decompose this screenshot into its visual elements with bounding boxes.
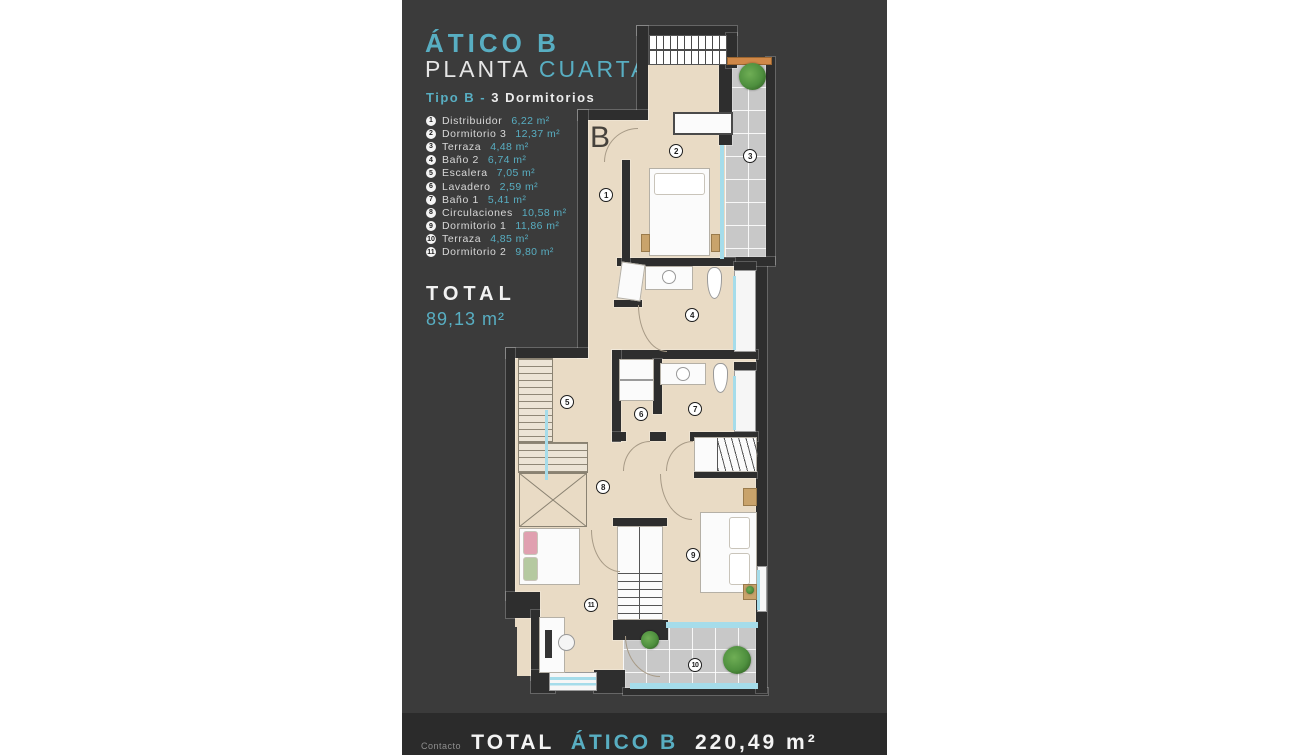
footer-total-label: TOTAL xyxy=(471,731,554,754)
room-number-badge: 6 xyxy=(634,407,648,421)
wall xyxy=(766,57,775,264)
wall xyxy=(613,518,667,526)
block-letter: B xyxy=(590,121,611,155)
pillow xyxy=(729,517,750,549)
window-bano1 xyxy=(734,370,756,432)
pillow xyxy=(523,557,538,581)
desk-chair xyxy=(558,634,575,651)
wall xyxy=(756,262,767,693)
staircase-landing xyxy=(518,442,588,473)
laundry-units xyxy=(619,359,654,401)
wall xyxy=(637,26,648,120)
stair-glass-rail xyxy=(545,410,548,480)
room-number-badge: 8 xyxy=(596,480,610,494)
room-number-badge: 9 xyxy=(686,548,700,562)
footer-unit-name: ÁTICO B xyxy=(571,731,678,754)
room-number-badge: 11 xyxy=(584,598,598,612)
screen: ÁTICO B PLANTA CUARTA Tipo B - 3 Dormito… xyxy=(0,0,1290,755)
wall xyxy=(694,472,757,478)
wall xyxy=(637,26,737,35)
room-number-badge: 10 xyxy=(688,658,702,672)
room-number-badge: 1 xyxy=(599,188,613,202)
window-lintel xyxy=(734,362,756,370)
wall xyxy=(506,348,515,600)
staircase-cross xyxy=(519,473,587,527)
terrace-3-glass xyxy=(720,145,724,259)
window-glass xyxy=(757,570,760,610)
room-number-badge: 5 xyxy=(560,395,574,409)
washbasin xyxy=(662,270,676,284)
wall xyxy=(612,432,626,441)
nightstand xyxy=(711,234,720,252)
wall xyxy=(622,160,630,262)
plant xyxy=(723,646,751,674)
nightstand xyxy=(743,488,757,506)
wall xyxy=(650,432,666,441)
desk-monitor xyxy=(545,630,552,658)
wardrobe-hangers xyxy=(717,438,758,471)
wardrobe-central xyxy=(617,526,663,620)
wardrobe-dormitorio1 xyxy=(694,437,757,472)
window-bano2 xyxy=(734,270,756,352)
room-number-badge: 7 xyxy=(688,402,702,416)
plant xyxy=(739,63,766,90)
window-glass xyxy=(733,376,736,430)
window-glass xyxy=(733,276,736,350)
footer-total-value: 220,49 m² xyxy=(695,731,818,754)
wall xyxy=(594,670,625,693)
wardrobe-hangers xyxy=(618,573,662,619)
pillow xyxy=(523,531,538,555)
pillow xyxy=(654,173,705,195)
room-number-badge: 3 xyxy=(743,149,757,163)
terrace-10-glass xyxy=(666,622,758,628)
wall xyxy=(578,110,588,358)
wall xyxy=(578,110,648,120)
washbasin xyxy=(676,367,690,381)
plant xyxy=(746,586,754,594)
wall xyxy=(623,688,768,695)
terrace-10-rail xyxy=(630,683,758,689)
wall xyxy=(506,348,588,358)
floorplan: B 1 2 3 4 5 6 7 8 9 10 11 xyxy=(0,0,1290,755)
nightstand xyxy=(641,234,650,252)
pillow xyxy=(729,553,750,585)
sideboard xyxy=(673,112,733,135)
footer-total: TOTAL ÁTICO B 220,49 m² xyxy=(402,731,887,755)
window-bottom-left xyxy=(549,672,597,691)
wardrobe-top xyxy=(648,35,727,65)
shower xyxy=(617,262,646,302)
room-number-badge: 2 xyxy=(669,144,683,158)
room-number-badge: 4 xyxy=(685,308,699,322)
window-lintel xyxy=(734,262,756,270)
